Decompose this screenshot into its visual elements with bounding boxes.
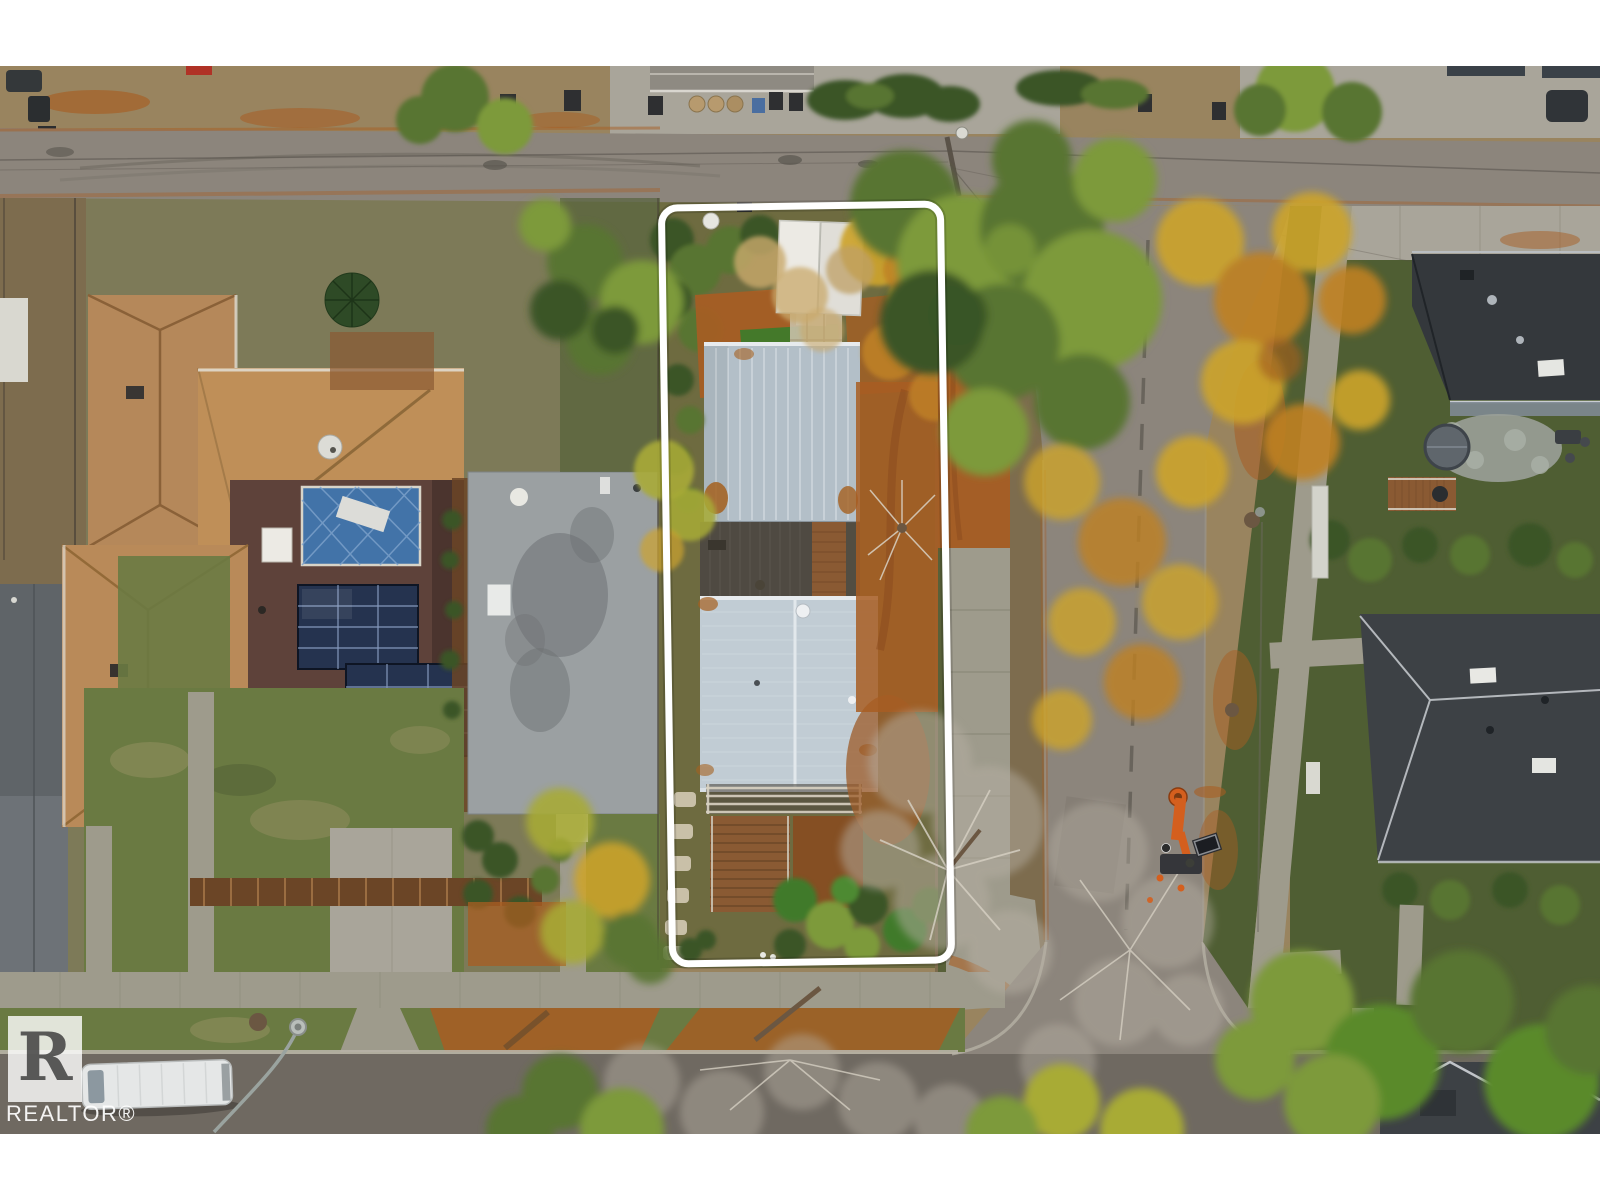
white-roof-dome xyxy=(510,488,528,506)
skylight xyxy=(487,584,511,616)
middle-deck xyxy=(700,522,860,602)
pergola-trellis xyxy=(706,784,862,814)
small-satellite-dish xyxy=(703,213,719,229)
roof-vent xyxy=(796,604,810,618)
rear-house-metal-roof xyxy=(704,342,860,522)
rear-deck xyxy=(330,332,434,390)
white-chimney xyxy=(262,528,292,562)
traffic-cone xyxy=(1178,885,1185,892)
alley-barrels xyxy=(689,96,743,112)
tall-white-chimney xyxy=(1312,486,1328,578)
solar-panel-array-upper xyxy=(298,585,418,669)
traffic-cone xyxy=(1147,897,1153,903)
patio-umbrella xyxy=(325,273,379,327)
flat-gray-building xyxy=(452,472,658,814)
worker xyxy=(1186,859,1195,868)
realtor-brand-text: REALTOR® xyxy=(6,1101,136,1127)
white-tarp xyxy=(0,298,28,382)
flat-roof-building-far-left xyxy=(0,584,68,1004)
main-sidewalk xyxy=(0,972,1005,1008)
leaf-litter-right xyxy=(856,382,938,712)
blue-courtyard xyxy=(302,487,420,565)
house-e-large-dark-roof xyxy=(1360,614,1600,862)
realtor-logo-letter: R xyxy=(18,1024,73,1090)
realtor-logo: R xyxy=(8,1016,82,1102)
aerial-photo-canvas xyxy=(0,66,1600,1134)
satellite-dish xyxy=(318,435,342,459)
alley-gable-roof-house xyxy=(650,66,814,92)
worker xyxy=(1162,844,1171,853)
dirt-yard xyxy=(0,198,86,590)
deck-walkway xyxy=(1388,477,1456,511)
traffic-cone xyxy=(1157,875,1164,882)
real-estate-aerial-photo: R REALTOR® xyxy=(0,0,1600,1200)
